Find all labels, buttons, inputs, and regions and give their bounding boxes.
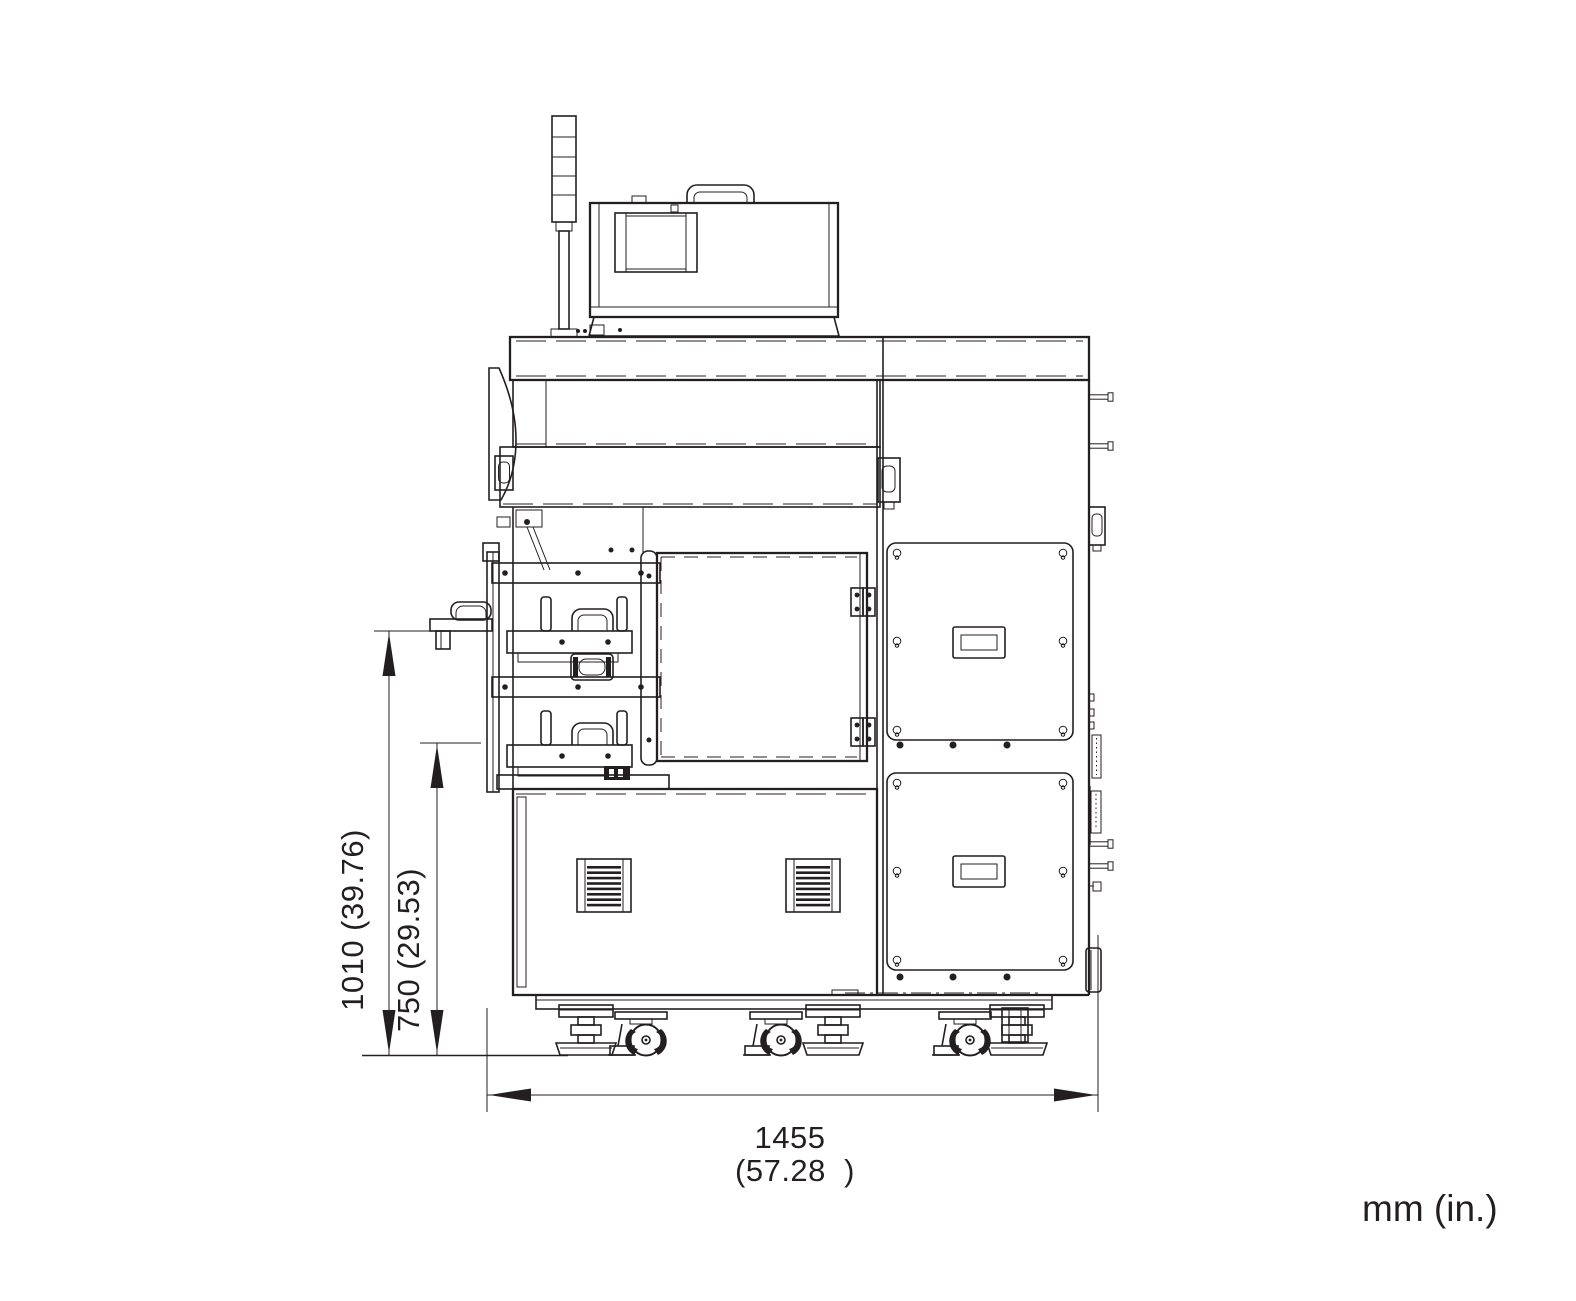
units-note: mm (in.) [1362, 1188, 1498, 1229]
right-panel-upper [887, 543, 1073, 740]
top-control-box [576, 185, 839, 336]
dimension-height-total-label: 1010 (39.76) [335, 829, 370, 1011]
drawing-canvas: 1010 (39.76) 750 (29.53) 1455 (57.28 ) m… [0, 0, 1576, 1301]
arrowhead-left [489, 1089, 531, 1102]
machine-dimension-drawing: 1010 (39.76) 750 (29.53) 1455 (57.28 ) m… [0, 0, 1576, 1301]
door-hinge-lower [851, 718, 875, 746]
sample-tray-lower [492, 677, 660, 776]
tray-assembly [430, 552, 669, 792]
top-band [510, 337, 1089, 380]
arrowhead-up [383, 633, 396, 676]
right-panel-column [877, 337, 1089, 995]
terminal-strip-upper [1092, 735, 1101, 778]
caster-right [932, 1012, 991, 1056]
vent-grille-left [577, 859, 631, 912]
display-window [615, 213, 697, 272]
leveling-foot-right [987, 1005, 1047, 1055]
right-panel-lower [887, 773, 1073, 970]
center-access-door [641, 551, 875, 765]
lower-cabinet [513, 789, 877, 995]
dimension-width-in-label: (57.28 ) [735, 1153, 855, 1188]
arrowhead-right [1054, 1089, 1096, 1102]
door-hinge-upper [851, 588, 875, 616]
sample-tray-upper [492, 563, 660, 662]
vent-grille-right [786, 859, 840, 912]
leveling-foot-left [556, 1005, 616, 1055]
signal-tower [551, 116, 577, 337]
arrowhead-down [431, 1010, 444, 1053]
column-latch [878, 458, 900, 509]
base-frame [536, 990, 1052, 1056]
center-grip [571, 654, 613, 680]
terminal-strip-lower [1090, 786, 1102, 845]
upper-bands [500, 380, 880, 507]
dimension-height-tray-label: 750 (29.53) [391, 868, 426, 1032]
face-details [513, 507, 643, 789]
arrowhead-up [431, 745, 444, 788]
side-shelf [430, 602, 492, 649]
caster-left [608, 1012, 667, 1056]
carry-handle [687, 185, 754, 202]
caster-center [743, 1012, 802, 1056]
dimension-width-total: 1455 (57.28 ) [487, 935, 1098, 1188]
dimension-annotations: 1010 (39.76) 750 (29.53) 1455 (57.28 ) m… [335, 631, 1498, 1229]
dimension-width-mm-label: 1455 [755, 1120, 826, 1155]
dimension-height-tray: 750 (29.53) [391, 743, 481, 1055]
machine-front-view [430, 116, 1113, 1056]
leveling-foot-center [803, 1005, 863, 1055]
